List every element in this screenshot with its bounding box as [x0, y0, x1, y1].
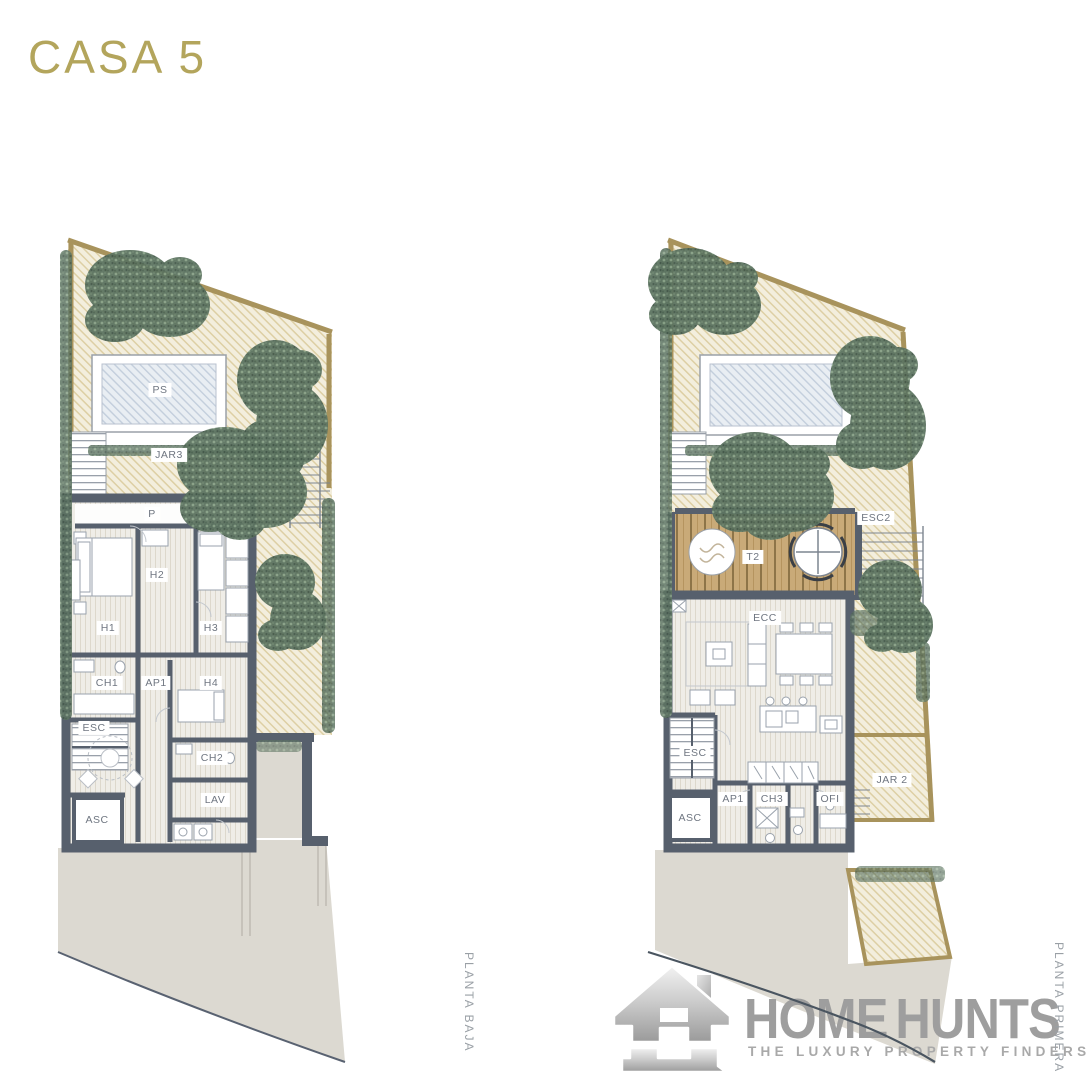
hedge-right — [916, 642, 930, 702]
room-label-ch3: CH3 — [757, 792, 788, 806]
street-curb-overlay — [620, 930, 970, 1080]
desk-ofi — [820, 814, 846, 828]
kitchen-island — [760, 706, 816, 732]
wardrobe — [226, 588, 248, 614]
sink-ch2 — [176, 744, 192, 754]
washer — [194, 824, 212, 840]
room-label-ecc: ECC — [749, 611, 781, 625]
room-label-h1: H1 — [97, 621, 119, 635]
garden-stairs-left — [670, 432, 706, 494]
toilet — [794, 826, 803, 835]
sofa — [748, 624, 766, 686]
room-label-jar3: JAR3 — [151, 448, 187, 462]
room-label-ap1: AP1 — [718, 792, 747, 806]
pool — [710, 364, 842, 426]
wardrobe — [226, 560, 248, 586]
washer — [174, 824, 192, 840]
room-label-esc: ESC — [78, 721, 109, 735]
room-label-ap1: AP1 — [141, 676, 170, 690]
tree — [648, 248, 761, 335]
tree — [858, 560, 933, 653]
room-label-pool: PS — [148, 383, 171, 397]
garden-stairs-left — [70, 432, 106, 494]
room-label-t2: T2 — [742, 550, 763, 564]
page-title: CASA 5 — [28, 30, 207, 84]
driveway-area — [58, 840, 345, 1062]
room-label-h4: H4 — [200, 676, 222, 690]
toilet-ch3 — [766, 834, 775, 843]
room-label-asc: ASC — [674, 811, 705, 825]
kitchen-appliance — [820, 716, 842, 733]
tree — [709, 432, 834, 540]
ottoman — [690, 690, 710, 705]
room-label-asc: ASC — [81, 813, 112, 827]
wall — [302, 742, 312, 846]
tv-unit — [706, 642, 732, 666]
room-label-esc: ESC — [679, 746, 710, 760]
room-label-lav: LAV — [201, 793, 230, 807]
floorplan-planta-baja: PS JAR3 P H2 H1 H3 CH1 AP1 H4 ESC CH2 LA… — [30, 230, 360, 1080]
room-label-esc2: ESC2 — [857, 511, 894, 525]
patio-area — [255, 742, 303, 838]
street-curb-line — [648, 952, 935, 1062]
sink-ch1 — [74, 660, 94, 672]
ottoman — [715, 690, 735, 705]
wardrobe — [226, 616, 248, 642]
caption-planta-baja: PLANTA BAJA — [462, 952, 476, 1052]
deck-spa — [689, 529, 735, 575]
patio-plants — [256, 740, 302, 752]
wall — [302, 836, 328, 846]
page: CASA 5 — [0, 0, 1091, 1080]
room-label-ch1: CH1 — [92, 676, 123, 690]
room-label-ofi: OFI — [817, 792, 844, 806]
sink — [790, 808, 804, 817]
dining-table — [776, 634, 832, 674]
room-label-ch2: CH2 — [197, 751, 228, 765]
tree — [85, 250, 210, 342]
toilet-ch1 — [115, 661, 125, 673]
room-label-jar2: JAR 2 — [872, 773, 911, 787]
room-label-h2: H2 — [146, 568, 168, 582]
floorplan-left-drawing — [30, 230, 360, 1080]
room-label-h3: H3 — [200, 621, 222, 635]
garden-greenery — [855, 866, 945, 882]
bath-ch1 — [74, 694, 134, 714]
tree — [830, 336, 926, 470]
caption-planta-primera: PLANTA PRIMERA — [1052, 942, 1066, 1073]
hedge-left — [60, 250, 72, 720]
room-label-porch: P — [144, 507, 160, 521]
